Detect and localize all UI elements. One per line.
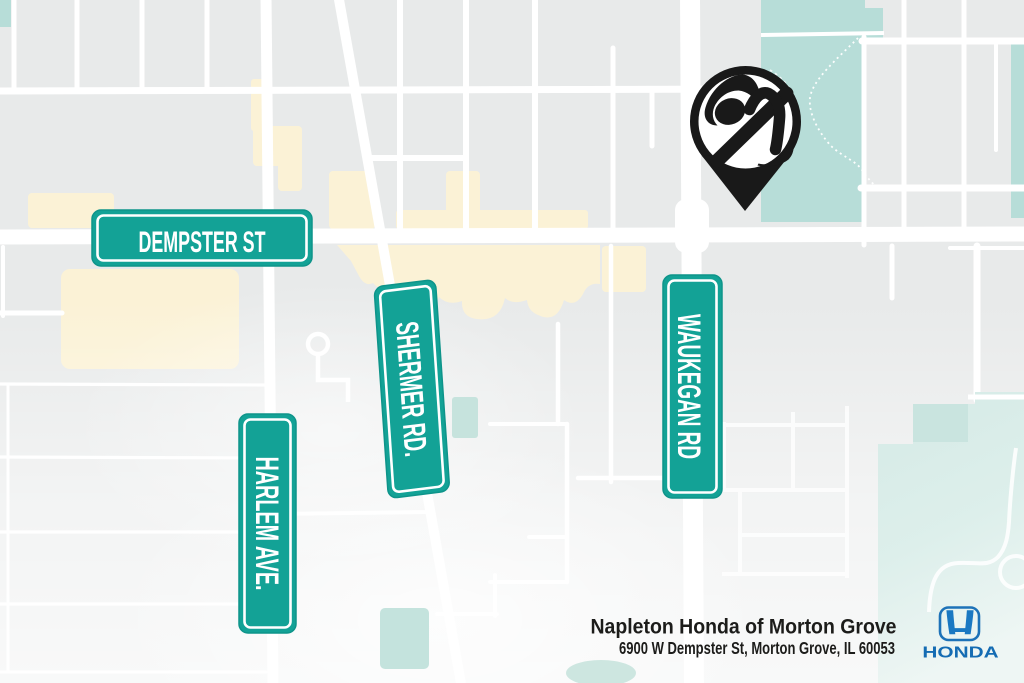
svg-text:HONDA: HONDA (922, 643, 998, 661)
svg-text:HARLEM AVE.: HARLEM AVE. (249, 457, 285, 591)
svg-text:DEMPSTER ST: DEMPSTER ST (139, 227, 266, 259)
svg-text:WAUKEGAN RD: WAUKEGAN RD (671, 314, 708, 459)
svg-text:6900 W Dempster St, Morton Gro: 6900 W Dempster St, Morton Grove, IL 600… (619, 640, 895, 659)
svg-text:Napleton Honda of Morton Grove: Napleton Honda of Morton Grove (591, 615, 897, 639)
